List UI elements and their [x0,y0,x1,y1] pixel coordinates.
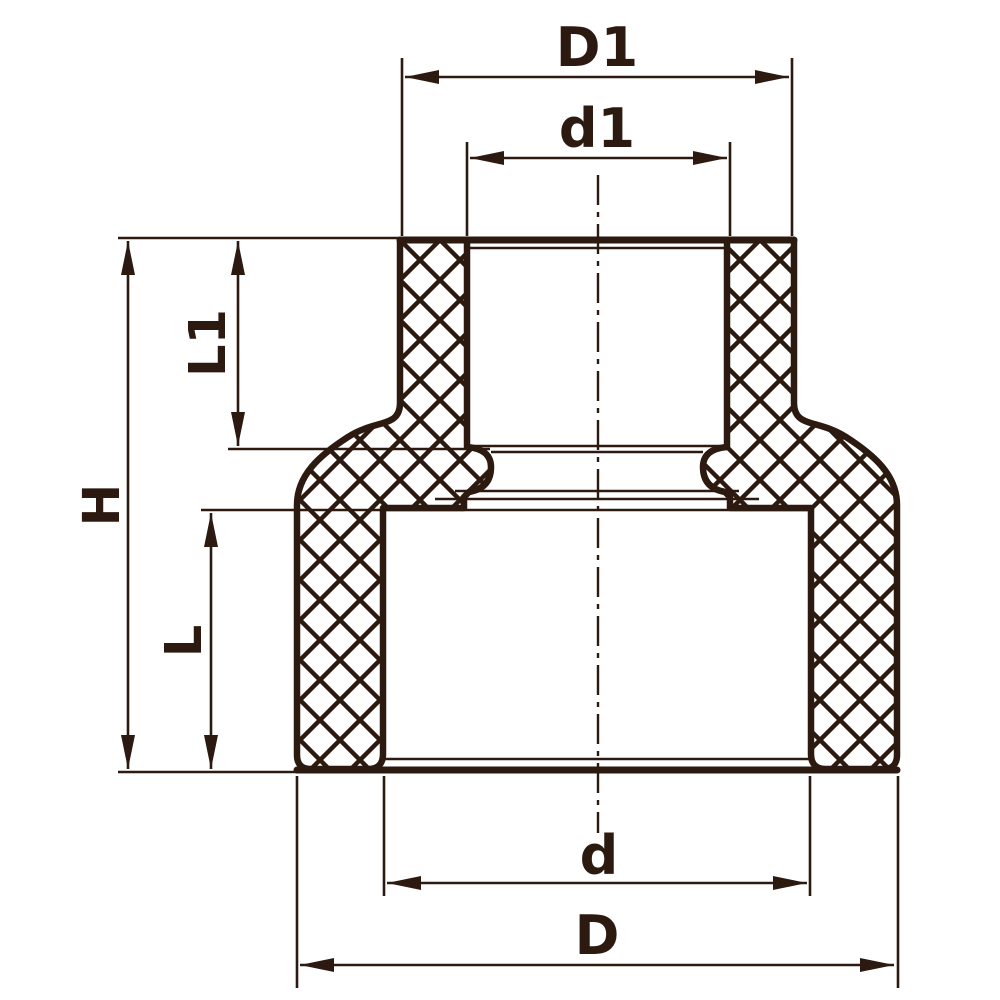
dimension-label-D1: D1 [556,16,638,79]
arrowhead-right-icon [773,876,807,890]
dimension-label-H: H [73,484,132,527]
dimension-d: d [384,776,810,896]
fitting-body [297,175,897,833]
technical-drawing-page: D1 d1 H L1 L d [0,0,1000,1000]
arrowhead-down-icon [121,735,135,769]
right-wall-section [703,240,897,769]
dimension-L: L [155,510,812,769]
dimension-label-d1: d1 [559,97,635,160]
dimension-label-L1: L1 [179,309,238,377]
arrowhead-up-icon [204,513,218,547]
arrowhead-right-icon [860,958,894,972]
reducing-coupling-section-drawing: D1 d1 H L1 L d [0,0,1000,1000]
arrowhead-left-icon [387,876,421,890]
arrowhead-right-icon [755,70,789,84]
dimension-label-L: L [155,625,214,658]
arrowhead-left-icon [405,70,439,84]
arrowhead-up-icon [121,241,135,275]
arrowhead-up-icon [231,241,245,275]
arrowhead-right-icon [693,151,727,165]
arrowhead-down-icon [204,735,218,769]
arrowhead-left-icon [470,151,504,165]
dimension-label-d: d [580,824,619,887]
dimension-label-D: D [575,904,620,967]
arrowhead-left-icon [300,958,334,972]
left-wall-section [297,240,491,769]
arrowhead-down-icon [231,412,245,446]
